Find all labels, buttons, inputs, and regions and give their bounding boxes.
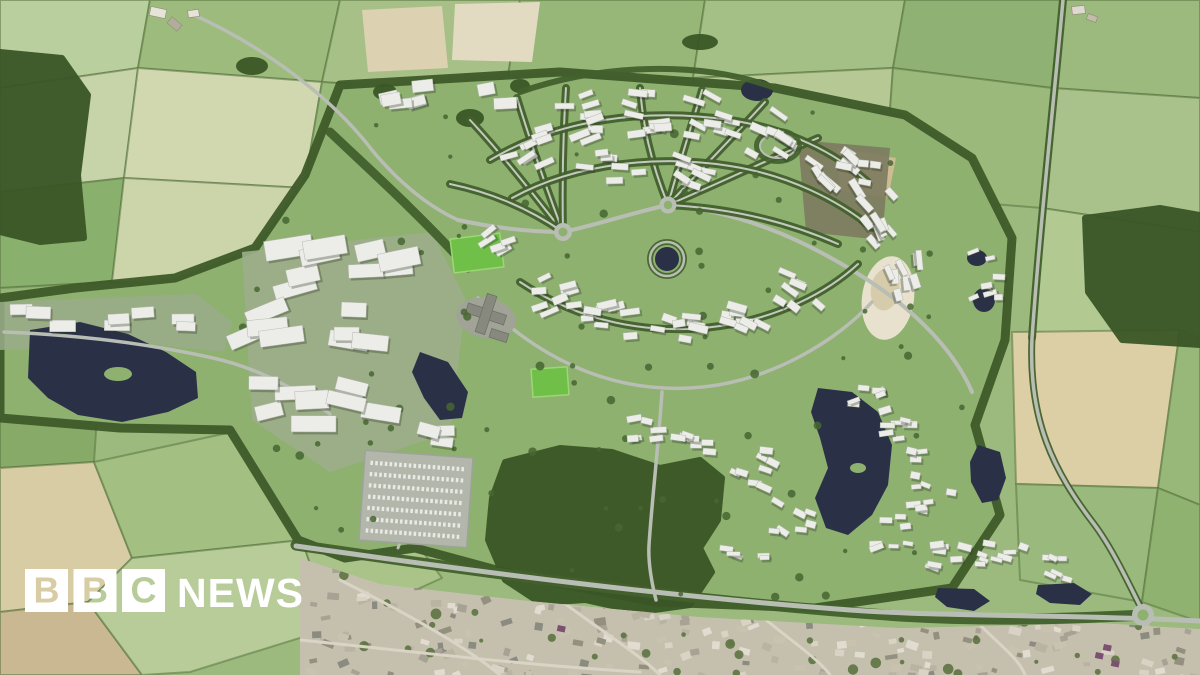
bbc-logo-blocks	[25, 569, 165, 612]
aerial-visualisation: B B C NEWS	[0, 0, 1200, 675]
bbc-news-wordmark: NEWS	[177, 570, 304, 616]
bbc-news-logo: NEWS	[25, 569, 304, 616]
bbc-news-aerial-masterplan-image: B B C NEWS	[0, 0, 1200, 675]
